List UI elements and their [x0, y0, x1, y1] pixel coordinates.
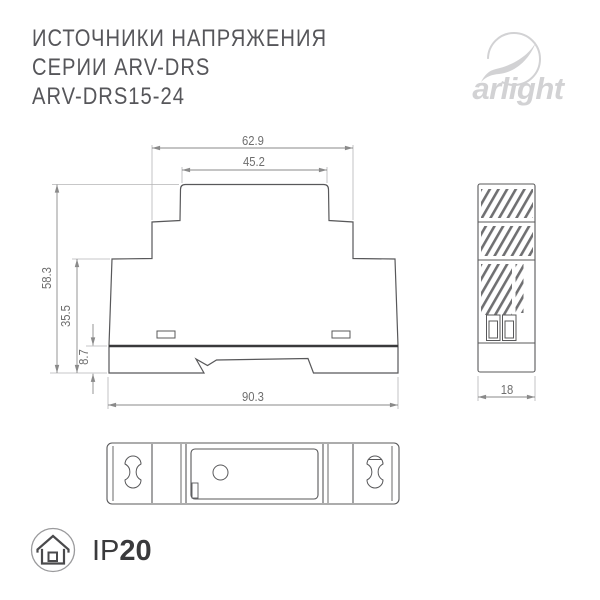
dim-label-18: 18 [487, 383, 527, 397]
terminal-blocks [487, 315, 517, 341]
panel-hole [213, 465, 228, 480]
dim-label-45-2: 45.2 [234, 155, 274, 169]
page-title: ИСТОЧНИКИ НАПРЯЖЕНИЯ СЕРИИ ARV-DRS ARV-D… [32, 24, 383, 111]
datasheet-page: ИСТОЧНИКИ НАПРЯЖЕНИЯ СЕРИИ ARV-DRS ARV-D… [0, 0, 600, 600]
ip-rating: IP20 [92, 535, 152, 568]
title-line-2: СЕРИИ ARV-DRS [32, 53, 327, 82]
title-line-1: ИСТОЧНИКИ НАПРЯЖЕНИЯ [32, 24, 327, 53]
ip20-badge-icon [32, 529, 75, 572]
bottom-view [107, 443, 399, 504]
dimension-lines [57, 148, 535, 405]
ip-rating-value: 20 [119, 535, 151, 567]
ip-rating-prefix: IP [92, 535, 119, 567]
dim-label-62-9: 62.9 [233, 134, 273, 148]
vent-slot-right [332, 331, 350, 338]
keyhole-left [125, 456, 141, 488]
side-view [478, 184, 535, 372]
din-rail-clip [109, 346, 398, 374]
dim-label-90-3: 90.3 [233, 390, 273, 404]
dim-label-8-7: 8.7 [77, 337, 91, 377]
panel-tab [192, 483, 198, 498]
keyhole-right [367, 456, 383, 488]
dim-label-35-5: 35.5 [59, 296, 73, 336]
label-panel [191, 449, 318, 499]
arlight-logo-text: arlight [443, 71, 593, 107]
dim-label-58-3: 58.3 [40, 258, 54, 298]
title-line-3: ARV-DRS15-24 [32, 82, 327, 111]
house-icon [38, 536, 69, 564]
vent-slot-left [157, 331, 175, 338]
vent-hatching [481, 189, 533, 315]
